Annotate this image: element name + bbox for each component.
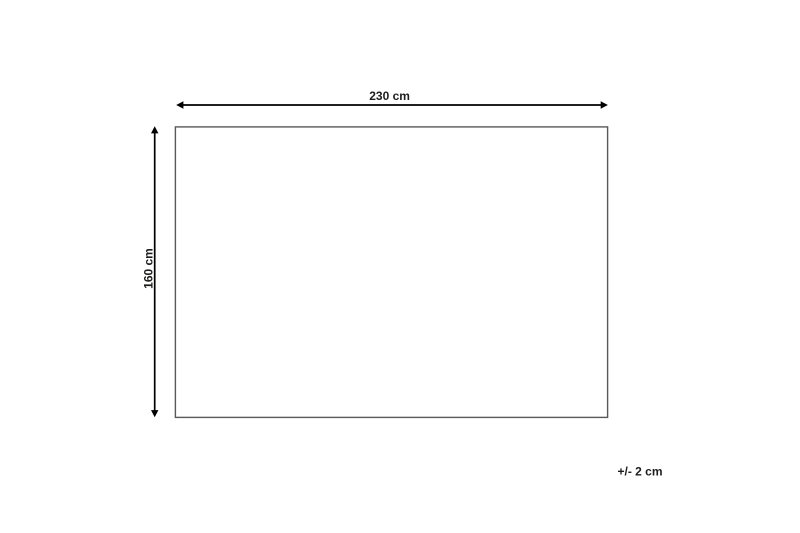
svg-text:160 cm: 160 cm <box>141 248 155 289</box>
svg-text:230 cm: 230 cm <box>369 89 410 103</box>
svg-text:+/- 2 cm: +/- 2 cm <box>617 464 662 478</box>
